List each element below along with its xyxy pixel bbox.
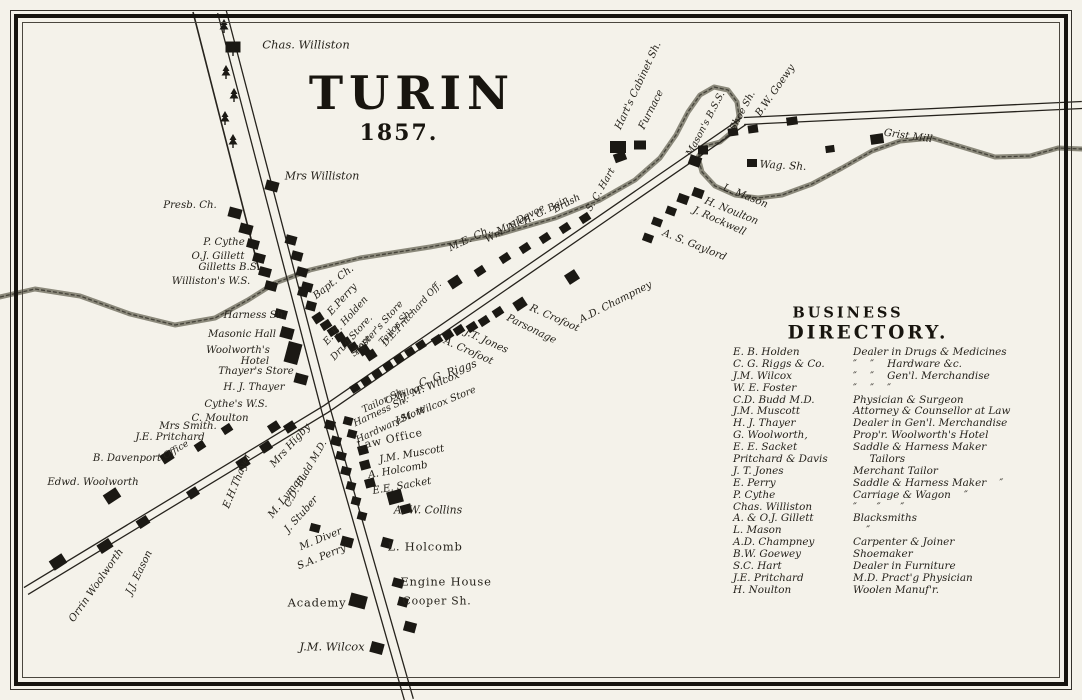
directory-entry-description: Physician & Surgeon: [853, 394, 964, 406]
directory-heading-directory: DIRECTORY.: [788, 323, 949, 344]
directory-entry-description: ″ ″ Hardware &c.: [853, 358, 962, 370]
building: [642, 233, 654, 244]
directory-entry-description: Shoemaker: [853, 548, 913, 560]
road: [744, 102, 1082, 118]
building: [360, 375, 372, 387]
building: [351, 496, 362, 506]
building: [349, 382, 361, 394]
directory-entry-description: Dealer in Furniture: [853, 560, 956, 572]
map-label: Thayer's Store: [218, 367, 293, 377]
map-label: Williston's W.S.: [172, 277, 250, 287]
map-label: L. Holcomb: [387, 541, 462, 553]
map-label: Cooper Sh.: [403, 597, 472, 608]
map-label: Harness Sh.: [224, 311, 287, 321]
building: [335, 451, 347, 461]
road: [28, 124, 746, 594]
building: [676, 193, 689, 205]
building: [691, 187, 704, 199]
building: [305, 300, 317, 311]
map-year: 1857.: [360, 120, 439, 146]
map-label: Edwd. Woolworth: [47, 478, 138, 488]
building: [369, 641, 384, 655]
directory-entry-description: Attorney & Counsellor at Law: [853, 405, 1010, 417]
directory-entry-description: ″ ″ ″: [853, 501, 904, 513]
building: [564, 269, 580, 285]
building: [447, 275, 463, 290]
directory-entry-name: E. Perry: [733, 478, 853, 490]
building: [293, 372, 308, 385]
building: [246, 238, 260, 250]
map-label: Masonic Hall: [208, 330, 276, 340]
building: [519, 242, 532, 254]
map-label: J.M. Wilcox: [299, 641, 364, 653]
map-label: B. Davenport: [93, 454, 161, 464]
map-label: O.J. Gillett: [192, 252, 245, 262]
building: [357, 511, 368, 521]
directory-entry-description: Saddle & Harness Maker: [853, 441, 986, 453]
building: [634, 141, 646, 150]
building: [340, 466, 352, 476]
building: [492, 306, 505, 318]
directory-entry-description: ″ ″ Gen'l. Merchandise: [853, 370, 990, 382]
pine-tree-icon: [222, 65, 231, 79]
building: [227, 206, 242, 219]
directory-entry-description: Merchant Tailor: [853, 465, 938, 477]
business-directory: E. B. HoldenDealer in Drugs & MedicinesC…: [733, 347, 1010, 597]
directory-entry: H. NoultonWoolen Manuf'r.: [733, 585, 1010, 597]
building: [478, 315, 491, 327]
map-label: Woolworth's: [206, 346, 270, 356]
map-label: Chas. Williston: [262, 39, 349, 51]
building: [279, 326, 294, 340]
building: [284, 341, 303, 365]
pine-tree-icon: [229, 134, 238, 148]
building: [665, 206, 677, 217]
building: [825, 145, 835, 153]
building: [870, 133, 884, 145]
building: [499, 252, 512, 264]
map-label: Engine House: [400, 576, 491, 588]
building: [285, 234, 298, 246]
map-label: Mrs Williston: [285, 171, 360, 182]
directory-entry-description: Saddle & Harness Maker ″: [853, 477, 1003, 489]
building: [382, 360, 394, 372]
building: [267, 420, 281, 434]
building: [136, 515, 151, 529]
map-label: Cythe's W.S.: [204, 400, 267, 410]
building: [559, 222, 572, 234]
directory-heading-business: BUSINESS: [792, 305, 903, 322]
directory-entry-name: J.M. Wilcox: [733, 371, 853, 383]
directory-entry-description: Blacksmiths: [853, 512, 917, 524]
building: [747, 159, 757, 167]
directory-entry-description: ″ ″ ″: [853, 382, 891, 394]
map-label: Presb. Ch.: [163, 201, 217, 211]
map-label: Academy: [288, 597, 347, 609]
directory-entry-name: W. E. Foster: [733, 383, 853, 395]
map-label: J.E. Pritchard: [135, 433, 204, 443]
building: [371, 368, 383, 380]
building: [393, 353, 405, 365]
directory-entry-name: C. G. Riggs & Co.: [733, 359, 853, 371]
road: [24, 118, 742, 588]
building: [474, 265, 487, 277]
building: [610, 141, 626, 153]
building: [49, 553, 68, 570]
building: [786, 116, 798, 125]
building: [403, 621, 417, 634]
map-label: Wag. Sh.: [759, 160, 806, 173]
building: [512, 297, 528, 312]
directory-entry-description: Tailors: [853, 453, 905, 465]
building: [291, 250, 304, 262]
map-label: Mrs Smith.: [159, 422, 217, 432]
map-label: P. Cythe: [203, 238, 245, 248]
building: [238, 222, 253, 235]
building: [348, 593, 368, 610]
directory-entry-name: P. Cythe: [733, 490, 853, 502]
map-label: Gilletts B.S.: [198, 263, 259, 273]
building: [259, 440, 273, 454]
building: [346, 481, 357, 491]
directory-entry-description: M.D. Pract'g Physician: [853, 572, 973, 584]
map-title: TURIN: [309, 66, 515, 120]
turin-1857-map: TURIN 1857. BUSINESS DIRECTORY. E. B. Ho…: [0, 0, 1082, 700]
map-label: H. J. Thayer: [223, 383, 284, 393]
building: [404, 346, 416, 358]
map-label: A. W. Collins: [394, 506, 462, 517]
directory-entry-description: Carpenter & Joiner: [853, 536, 954, 548]
building: [747, 124, 758, 133]
directory-entry-description: Dealer in Gen'l. Merchandise: [853, 417, 1007, 429]
building: [103, 487, 122, 504]
building: [309, 523, 321, 533]
building: [221, 423, 234, 435]
directory-entry-description: ″: [853, 524, 870, 536]
building: [539, 232, 552, 244]
directory-entry-description: Dealer in Drugs & Medicines: [853, 346, 1007, 358]
building: [258, 266, 272, 278]
directory-entry-description: Woolen Manuf'r.: [853, 584, 939, 596]
building: [264, 179, 279, 192]
directory-entry-name: H. Noulton: [733, 585, 853, 597]
directory-entry-description: Carriage & Wagon ″: [853, 489, 968, 501]
building: [651, 217, 663, 228]
directory-entry-description: Prop'r. Woolworth's Hotel: [853, 429, 988, 441]
